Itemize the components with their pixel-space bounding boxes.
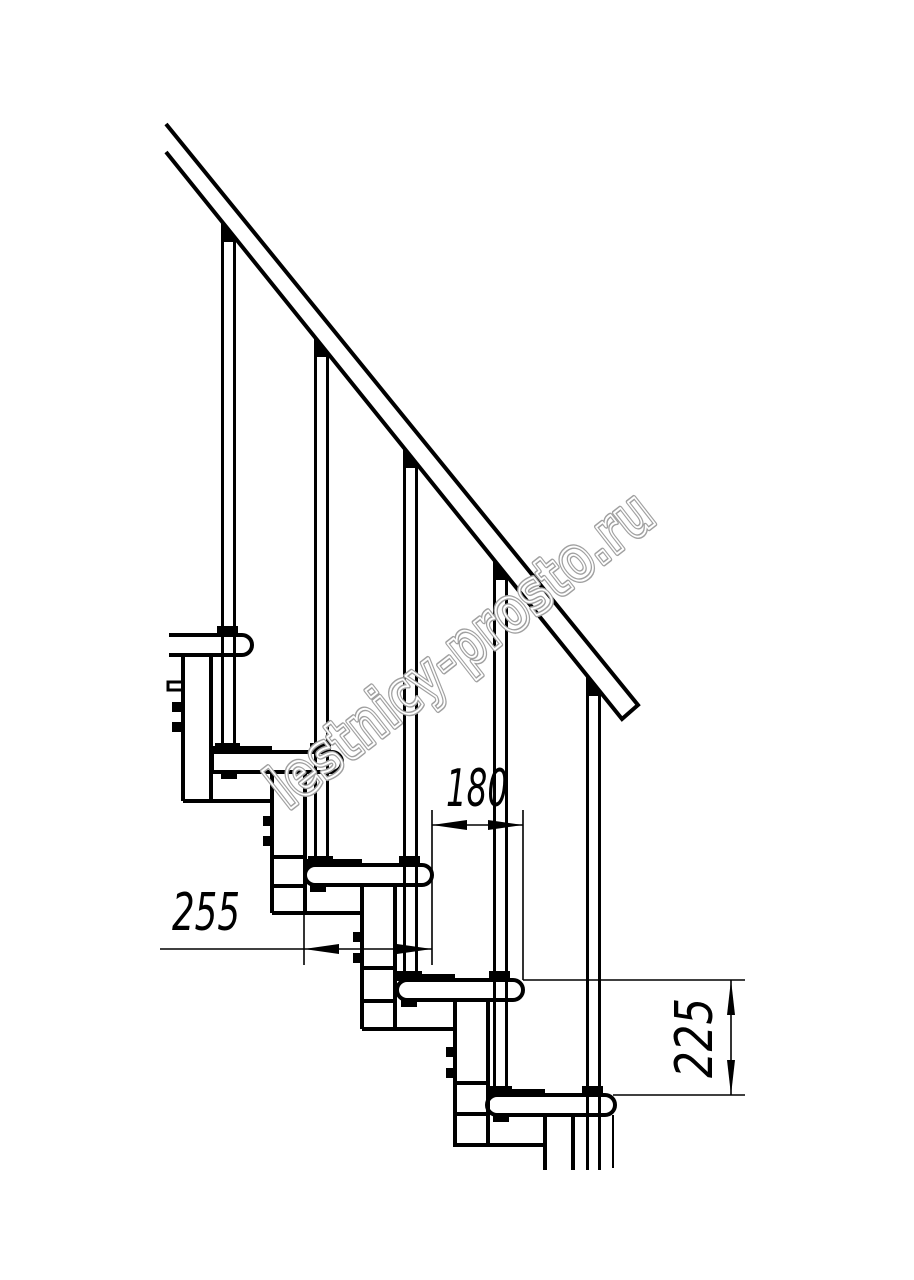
spine-module-1 [168,655,271,801]
extension-line [432,810,523,980]
bolt [263,816,274,826]
tread-bolt [310,885,326,892]
dimension-arrow [727,980,735,1015]
post-foot [215,743,240,752]
dimension-arrow [397,944,432,954]
post-collar [582,1086,603,1095]
dimension-label-225: 225 [665,998,725,1078]
post-collar [489,971,510,980]
bolt [353,932,364,942]
post-collar [217,626,238,635]
post-collar [399,856,420,865]
post-foot [308,856,333,865]
dimension-180: 180 [432,759,523,980]
dimension-255: 255 [160,883,432,965]
dimension-arrow [727,1060,735,1095]
dimension-225: 225 [523,980,745,1095]
bolt [353,953,364,963]
dimension-label-255: 255 [172,883,240,943]
bolt [172,702,183,712]
baluster-1 [221,218,236,743]
bolt [446,1068,457,1078]
tread-1 [169,635,252,655]
weld-stub [168,682,183,690]
tread-bolt [493,1115,509,1122]
spine-module-5 [545,1115,613,1170]
staircase-side-view-drawing: 180 255 225 lestnicy-prosto.ru lestnicy-… [0,0,914,1280]
post-foot [487,1086,512,1095]
tread-bolt [401,1000,417,1007]
tread-5 [487,1095,615,1115]
tread-3 [305,865,432,885]
post-foot [397,971,422,980]
drawing-canvas: 180 255 225 lestnicy-prosto.ru lestnicy-… [0,0,914,1280]
dimension-label-180: 180 [446,759,508,819]
bolt [172,722,183,732]
tread-bolt [221,772,237,779]
dimension-arrow [304,944,339,954]
bolt [446,1047,457,1057]
tread-4 [397,980,523,1000]
dimension-arrow [432,820,467,830]
bolt [263,836,274,846]
